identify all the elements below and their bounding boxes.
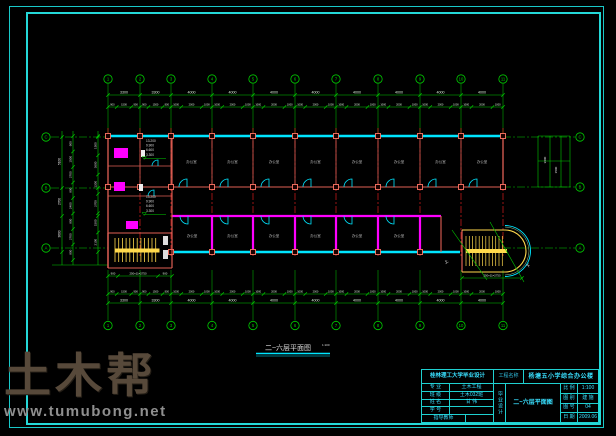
svg-text:4000: 4000 (188, 90, 196, 94)
svg-text:10: 10 (459, 323, 464, 328)
svg-text:900: 900 (111, 272, 116, 276)
svg-text:1500: 1500 (69, 156, 73, 163)
svg-text:2000: 2000 (438, 290, 444, 294)
svg-text:1000: 1000 (422, 290, 428, 294)
svg-text:9: 9 (419, 323, 422, 328)
svg-text:900: 900 (133, 103, 138, 107)
svg-text:11: 11 (501, 77, 506, 82)
svg-text:900: 900 (142, 290, 147, 294)
svg-text:2000: 2000 (479, 103, 485, 107)
major-label: 专 业 (422, 384, 450, 391)
svg-text:二~六层平面图: 二~六层平面图 (265, 343, 311, 352)
scale-label: 比 例 (561, 384, 578, 393)
cad-sheet: 11223344556677889910101111CBACBA33009001… (0, 0, 616, 436)
svg-text:办公室: 办公室 (227, 159, 238, 164)
svg-text:4000: 4000 (188, 298, 196, 302)
svg-text:1000: 1000 (204, 290, 210, 294)
svg-text:1000: 1000 (328, 103, 334, 107)
title-block: 桂林理工大学毕业设计 工程名称 杨塘五小学综合办公楼 专 业土木工程 班 级土木… (421, 369, 599, 423)
svg-text:900: 900 (69, 218, 73, 223)
building: 13.2009.9006.6003.30013.2009.9006.6003.3… (106, 128, 506, 268)
svg-text:1: 1 (107, 323, 110, 328)
svg-text:2000: 2000 (189, 290, 195, 294)
svg-text:900: 900 (69, 249, 73, 254)
svg-text:办公室: 办公室 (269, 159, 280, 164)
svg-text:1000: 1000 (412, 103, 418, 107)
svg-text:900: 900 (163, 272, 168, 276)
svg-text:4000: 4000 (478, 298, 486, 302)
svg-text:1000: 1000 (453, 103, 459, 107)
svg-text:3.300: 3.300 (146, 153, 154, 157)
svg-text:办公室: 办公室 (269, 233, 280, 238)
svg-text:1000: 1000 (453, 290, 459, 294)
svg-text:1000: 1000 (204, 103, 210, 107)
svg-text:3600: 3600 (94, 161, 98, 168)
svg-text:1000: 1000 (412, 290, 418, 294)
svg-text:2100: 2100 (94, 238, 98, 245)
svg-text:7: 7 (335, 77, 338, 82)
student-id-label: 学 号 (422, 407, 450, 414)
svg-text:8: 8 (377, 77, 380, 82)
svg-text:A: A (579, 246, 582, 251)
svg-text:2700: 2700 (94, 200, 98, 207)
svg-text:2000: 2000 (271, 103, 277, 107)
svg-text:1000: 1000 (422, 103, 428, 107)
svg-text:900: 900 (165, 103, 170, 107)
svg-text:办公室: 办公室 (310, 159, 321, 164)
svg-text:2000: 2000 (438, 103, 444, 107)
sheet-no-label: 图 号 (561, 404, 578, 413)
svg-text:4000: 4000 (353, 298, 361, 302)
svg-text:1000: 1000 (287, 290, 293, 294)
advisor-value (466, 415, 493, 422)
svg-text:9.900: 9.900 (146, 200, 154, 204)
svg-text:9.900: 9.900 (146, 144, 154, 148)
date-label: 日 期 (561, 413, 578, 422)
svg-text:办公室: 办公室 (310, 233, 321, 238)
svg-text:办公室: 办公室 (227, 233, 238, 238)
drawing-name-cell: 二~六层平面图 (506, 384, 561, 422)
svg-text:B: B (579, 185, 582, 190)
svg-text:2000: 2000 (396, 290, 402, 294)
svg-text:1500: 1500 (153, 290, 159, 294)
svg-text:3300: 3300 (120, 298, 128, 302)
svg-text:6.600: 6.600 (146, 204, 154, 208)
svg-text:1:100: 1:100 (322, 343, 330, 347)
svg-text:6: 6 (294, 77, 297, 82)
svg-text:5: 5 (252, 323, 255, 328)
svg-text:4000: 4000 (478, 90, 486, 94)
svg-text:4000: 4000 (395, 298, 403, 302)
svg-text:4000: 4000 (312, 298, 320, 302)
svg-text:2000: 2000 (396, 103, 402, 107)
svg-text:办公室: 办公室 (187, 233, 198, 238)
title-block-meta: 比 例1:100 图 别建 施 图 号04 日 期2009.06 (561, 384, 598, 422)
svg-text:1000: 1000 (370, 290, 376, 294)
svg-text:2000: 2000 (354, 103, 360, 107)
svg-text:办公室: 办公室 (352, 233, 363, 238)
svg-text:1000: 1000 (380, 290, 386, 294)
svg-text:4000: 4000 (312, 90, 320, 94)
svg-text:900: 900 (142, 103, 147, 107)
svg-text:13.200: 13.200 (146, 195, 156, 199)
svg-text:1200: 1200 (94, 181, 98, 188)
svg-text:1000: 1000 (380, 103, 386, 107)
svg-text:办公室: 办公室 (352, 159, 363, 164)
svg-text:办公室: 办公室 (435, 159, 446, 164)
stage-vertical-label: 毕业设计 (494, 384, 506, 422)
svg-text:上: 上 (442, 258, 449, 265)
svg-text:2000: 2000 (479, 290, 485, 294)
svg-text:4000: 4000 (395, 90, 403, 94)
svg-text:2400: 2400 (69, 202, 73, 209)
svg-text:3: 3 (170, 77, 173, 82)
svg-text:1000: 1000 (495, 103, 501, 107)
svg-text:4000: 4000 (437, 90, 445, 94)
svg-text:3300: 3300 (152, 298, 160, 302)
svg-text:1000: 1000 (463, 290, 469, 294)
svg-text:1000: 1000 (495, 290, 501, 294)
title-block-info-rows: 专 业土木工程 班 级土木032班 姓 名甘 伟 学 号 指导教师 (422, 384, 494, 422)
student-id-value (450, 407, 493, 414)
svg-text:办公室: 办公室 (186, 159, 197, 164)
svg-text:4: 4 (211, 323, 214, 328)
svg-text:6.600: 6.600 (146, 148, 154, 152)
svg-text:2000: 2000 (189, 103, 195, 107)
svg-text:6: 6 (294, 323, 297, 328)
svg-text:1000: 1000 (463, 103, 469, 107)
svg-text:7: 7 (335, 323, 338, 328)
svg-text:2: 2 (139, 77, 142, 82)
svg-text:A: A (45, 246, 48, 251)
svg-text:3600: 3600 (58, 230, 62, 237)
svg-text:5: 5 (252, 77, 255, 82)
svg-text:900: 900 (133, 290, 138, 294)
major-value: 土木工程 (450, 384, 493, 391)
svg-text:2000: 2000 (354, 290, 360, 294)
svg-text:1000: 1000 (214, 290, 220, 294)
svg-text:1500: 1500 (121, 290, 127, 294)
svg-text:2000: 2000 (230, 103, 236, 107)
category-label: 图 别 (561, 394, 578, 403)
svg-text:1000: 1000 (214, 103, 220, 107)
date-value: 2009.06 (578, 413, 598, 422)
svg-text:办公室: 办公室 (394, 159, 405, 164)
svg-text:10: 10 (459, 77, 464, 82)
svg-text:2: 2 (139, 323, 142, 328)
project-name-label: 工程名称 (494, 370, 524, 383)
svg-text:4000: 4000 (437, 298, 445, 302)
name-label: 姓 名 (422, 400, 450, 407)
svg-text:2700: 2700 (69, 233, 73, 240)
name-value: 甘 伟 (450, 400, 493, 407)
svg-text:1000: 1000 (370, 103, 376, 107)
svg-text:3300: 3300 (152, 90, 160, 94)
svg-text:1000: 1000 (173, 290, 179, 294)
svg-text:13.200: 13.200 (146, 139, 156, 143)
svg-text:3: 3 (170, 323, 173, 328)
title-block-school: 桂林理工大学毕业设计 (422, 370, 494, 383)
svg-text:250×11=2750: 250×11=2750 (129, 272, 147, 276)
svg-text:900: 900 (110, 290, 115, 294)
svg-text:1500: 1500 (94, 142, 98, 149)
svg-text:1500: 1500 (94, 219, 98, 226)
svg-text:1000: 1000 (287, 103, 293, 107)
svg-text:1000: 1000 (297, 290, 303, 294)
sheet-no-value: 04 (578, 404, 598, 413)
svg-text:1000: 1000 (297, 103, 303, 107)
svg-text:900: 900 (69, 187, 73, 192)
svg-text:2000: 2000 (313, 290, 319, 294)
svg-text:C: C (578, 135, 581, 140)
svg-text:4: 4 (211, 77, 214, 82)
svg-text:1000: 1000 (173, 103, 179, 107)
svg-text:1500: 1500 (121, 103, 127, 107)
svg-text:2000: 2000 (230, 290, 236, 294)
svg-text:3600: 3600 (543, 156, 547, 163)
svg-text:4000: 4000 (270, 90, 278, 94)
svg-text:250×11=2750: 250×11=2750 (483, 274, 501, 278)
svg-text:1500: 1500 (153, 103, 159, 107)
svg-text:C: C (44, 135, 47, 140)
svg-text:900: 900 (110, 103, 115, 107)
svg-text:900: 900 (69, 141, 73, 146)
svg-text:8: 8 (377, 323, 380, 328)
svg-text:4000: 4000 (229, 90, 237, 94)
project-name-value: 杨塘五小学综合办公楼 (524, 370, 598, 383)
svg-text:2000: 2000 (313, 103, 319, 107)
svg-text:1000: 1000 (338, 290, 344, 294)
svg-text:1000: 1000 (255, 290, 261, 294)
svg-text:B: B (45, 186, 48, 191)
plan-caption: 二~六层平面图1:100 (256, 343, 330, 356)
class-value: 土木032班 (450, 392, 493, 399)
svg-text:4000: 4000 (353, 90, 361, 94)
advisor-label: 指导教师 (422, 415, 466, 422)
svg-text:2000: 2000 (271, 290, 277, 294)
svg-text:1: 1 (107, 77, 110, 82)
svg-text:3300: 3300 (120, 90, 128, 94)
svg-text:办公室: 办公室 (477, 159, 488, 164)
svg-text:1000: 1000 (245, 103, 251, 107)
svg-text:1000: 1000 (338, 103, 344, 107)
svg-text:1000: 1000 (328, 290, 334, 294)
class-label: 班 级 (422, 392, 450, 399)
svg-text:4000: 4000 (270, 298, 278, 302)
svg-text:1500: 1500 (554, 166, 558, 173)
svg-text:2700: 2700 (58, 198, 62, 205)
svg-text:11: 11 (501, 323, 506, 328)
svg-text:4000: 4000 (229, 298, 237, 302)
svg-text:下: 下 (525, 263, 531, 269)
svg-text:办公室: 办公室 (394, 233, 405, 238)
scale-value: 1:100 (578, 384, 598, 393)
svg-text:5100: 5100 (58, 158, 62, 165)
svg-text:3.300: 3.300 (146, 209, 154, 213)
category-value: 建 施 (578, 394, 598, 403)
svg-text:1000: 1000 (245, 290, 251, 294)
svg-text:1000: 1000 (255, 103, 261, 107)
svg-text:900: 900 (165, 290, 170, 294)
svg-text:9: 9 (419, 77, 422, 82)
svg-text:2700: 2700 (69, 171, 73, 178)
